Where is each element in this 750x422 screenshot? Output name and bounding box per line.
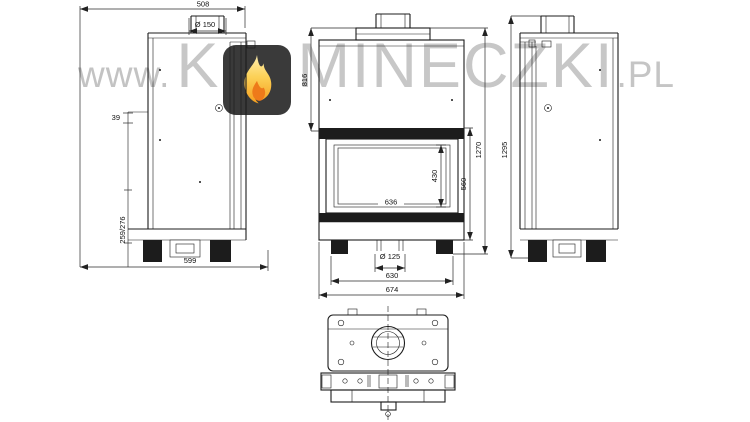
technical-drawing: 508 Ø 150 39 259 (0, 0, 750, 422)
dim-front-door-height: 560 (459, 178, 468, 191)
dim-front-height-overall: 1270 (474, 142, 483, 159)
dim-front-width-overall: 674 (386, 285, 399, 294)
dim-front-upper-section-height: 816 (300, 74, 309, 87)
dim-front-air-inlet-diameter: Ø 125 (380, 252, 400, 261)
dim-left-rear-height: 259/276 (118, 216, 127, 243)
fireplace-technical-drawing-page: www. K MINECZKI .PL (0, 0, 750, 422)
dim-front-glass-height: 430 (430, 170, 439, 183)
dim-left-depth-total: 508 (197, 0, 210, 9)
dim-left-flue-diameter: Ø 150 (195, 20, 215, 29)
front-view: 636 Ø 125 630 674 816 (300, 14, 488, 299)
dim-front-glass-width: 636 (385, 198, 398, 207)
side-view-right: 1295 (500, 16, 618, 262)
dim-left-flue-offset: 39 (112, 113, 120, 122)
dim-front-base-width: 630 (386, 271, 399, 280)
dim-left-base-depth: 599 (184, 256, 197, 265)
plan-view (321, 306, 455, 420)
side-view-left: 508 Ø 150 39 259 (80, 0, 268, 271)
dim-right-height-overall: 1295 (500, 142, 509, 159)
